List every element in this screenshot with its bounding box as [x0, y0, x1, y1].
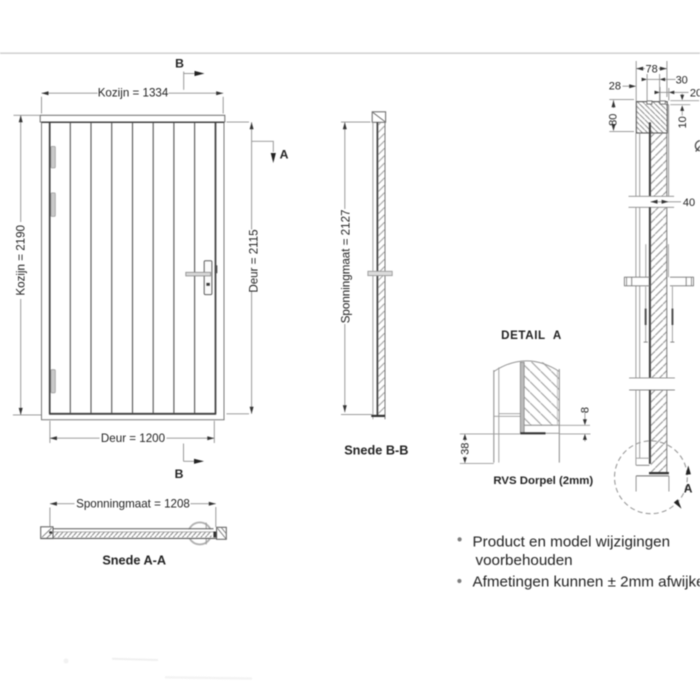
svg-text:Kozijn = 1334: Kozijn = 1334	[98, 87, 169, 100]
svg-text:80: 80	[608, 114, 620, 126]
svg-text:78: 78	[645, 63, 657, 75]
svg-text:8: 8	[580, 407, 592, 413]
svg-text:Sponningmaat = 2127: Sponningmaat = 2127	[340, 210, 353, 324]
svg-text:DETAIL A: DETAIL A	[501, 329, 562, 342]
svg-text:B: B	[175, 467, 184, 481]
svg-text:30: 30	[676, 74, 688, 86]
svg-text:Deur = 2115: Deur = 2115	[248, 229, 261, 292]
svg-text:10: 10	[677, 116, 689, 128]
svg-text:RVS Dorpel (2mm): RVS Dorpel (2mm)	[493, 475, 593, 487]
svg-text:Snede B-B: Snede B-B	[344, 443, 408, 457]
svg-text:Afmetingen kunnen ± 2mm afwijk: Afmetingen kunnen ± 2mm afwijken	[473, 574, 700, 591]
svg-text:Product en model wijzigingen: Product en model wijzigingen	[473, 533, 671, 550]
svg-text:28: 28	[609, 81, 621, 93]
svg-text:A: A	[280, 148, 289, 162]
svg-text:Deur = 1200: Deur = 1200	[101, 432, 165, 445]
svg-text:Kozijn = 2190: Kozijn = 2190	[15, 225, 28, 296]
svg-text:B: B	[175, 57, 184, 71]
svg-text:voorbehouden: voorbehouden	[476, 552, 573, 569]
svg-text:A: A	[684, 482, 693, 496]
svg-text:Snede A-A: Snede A-A	[102, 553, 166, 567]
svg-text:20: 20	[690, 87, 700, 99]
svg-text:Sponningmaat = 1208: Sponningmaat = 1208	[76, 497, 190, 510]
svg-text:38: 38	[459, 443, 471, 455]
svg-text:40: 40	[683, 197, 695, 209]
